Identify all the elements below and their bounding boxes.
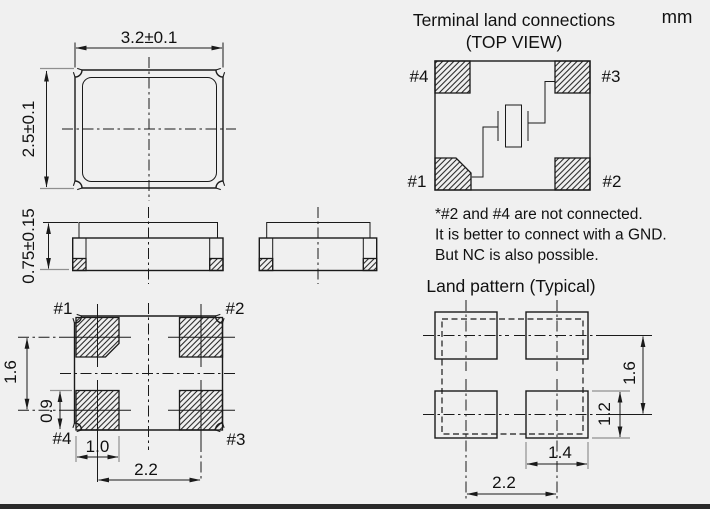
pad-2: [555, 158, 590, 190]
dim-pad-width: 1.0: [86, 437, 110, 456]
pad-label-3: #3: [227, 430, 246, 449]
dim-width: 3.2±0.1: [121, 28, 178, 47]
pad-4: [435, 61, 470, 93]
package-drawing: mm 3.2±0.1 2.5±0.1 0.75±0.15: [0, 0, 710, 509]
dim-pad-height: 0.9: [37, 399, 56, 423]
terminal-pad: [259, 259, 272, 271]
pad-label-3: #3: [602, 67, 621, 86]
note-line-2: It is better to connect with a GND.: [435, 227, 667, 244]
dim-pad-height: 1.2: [595, 402, 614, 426]
dim-col-pitch: 2.2: [134, 460, 158, 479]
pad-label-2: #2: [226, 299, 245, 318]
section-title: Land pattern (Typical): [426, 276, 595, 296]
note-line-3: But NC is also possible.: [435, 247, 599, 264]
dim-thickness: 0.75±0.15: [19, 208, 38, 284]
dim-pad-width: 1.4: [548, 443, 572, 462]
terminal-pad: [73, 259, 86, 271]
pad-3: [555, 61, 590, 93]
section-title: Terminal land connections: [413, 10, 616, 30]
unit-label: mm: [662, 6, 693, 27]
note-line-1: *#2 and #4 are not connected.: [435, 206, 643, 223]
terminal-pad: [363, 259, 376, 271]
pad-label-2: #2: [603, 172, 622, 191]
pad-label-1: #1: [408, 172, 427, 191]
dim-col-pitch: 2.2: [492, 473, 516, 492]
bottom-border: [0, 504, 710, 509]
terminal-pad: [210, 259, 223, 271]
pad-label-1: #1: [54, 299, 73, 318]
dim-row-pitch: 1.6: [1, 360, 20, 384]
pad-label-4: #4: [53, 429, 72, 448]
dim-height: 2.5±0.1: [19, 101, 38, 158]
pad-label-4: #4: [410, 67, 429, 86]
dim-row-pitch: 1.6: [620, 361, 639, 385]
section-subtitle: (TOP VIEW): [466, 32, 563, 52]
